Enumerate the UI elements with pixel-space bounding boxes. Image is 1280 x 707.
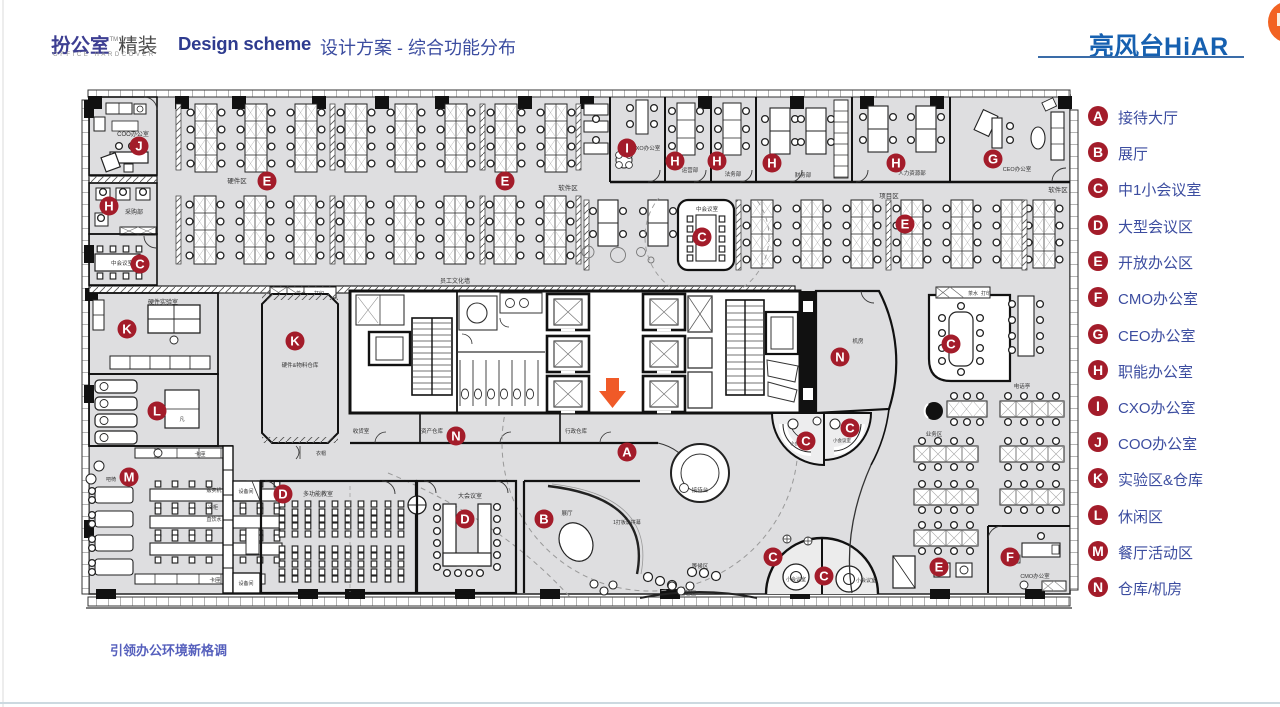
svg-text:C: C (946, 337, 956, 352)
svg-text:L: L (153, 404, 161, 419)
svg-text:E: E (935, 560, 944, 575)
svg-text:E: E (901, 217, 910, 232)
svg-text:H: H (712, 154, 721, 169)
svg-text:K: K (122, 322, 132, 337)
svg-text:C: C (697, 230, 707, 245)
svg-text:E: E (501, 174, 510, 189)
svg-text:C: C (768, 550, 778, 565)
svg-text:C: C (801, 434, 811, 449)
svg-text:E: E (263, 174, 272, 189)
svg-text:D: D (460, 512, 469, 527)
svg-text:H: H (670, 154, 679, 169)
svg-text:N: N (451, 429, 460, 444)
svg-text:C: C (845, 421, 855, 436)
svg-text:H: H (104, 199, 113, 214)
svg-text:N: N (835, 350, 844, 365)
svg-text:H: H (767, 156, 776, 171)
svg-text:F: F (1006, 550, 1014, 565)
svg-text:A: A (622, 445, 632, 460)
svg-text:C: C (135, 257, 145, 272)
svg-text:B: B (539, 512, 548, 527)
svg-text:M: M (124, 470, 135, 485)
svg-text:K: K (290, 334, 300, 349)
svg-text:J: J (135, 139, 142, 154)
svg-text:C: C (819, 569, 829, 584)
svg-text:D: D (278, 487, 287, 502)
svg-text:H: H (891, 156, 900, 171)
svg-text:G: G (988, 152, 998, 167)
svg-text:I: I (625, 141, 629, 156)
